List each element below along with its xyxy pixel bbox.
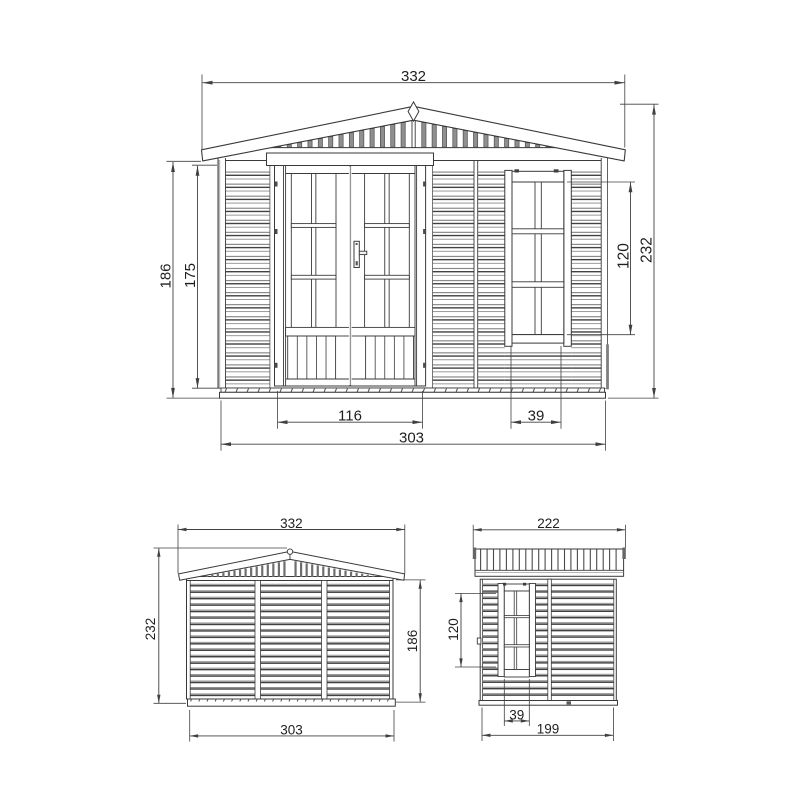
svg-text:303: 303 xyxy=(399,430,424,447)
svg-text:232: 232 xyxy=(143,618,158,641)
svg-text:332: 332 xyxy=(280,516,303,531)
svg-text:175: 175 xyxy=(182,263,199,288)
svg-text:120: 120 xyxy=(615,243,632,269)
svg-text:116: 116 xyxy=(338,408,362,425)
svg-text:199: 199 xyxy=(537,722,560,737)
svg-text:232: 232 xyxy=(639,237,656,263)
svg-text:186: 186 xyxy=(405,630,420,653)
svg-text:186: 186 xyxy=(157,263,174,288)
svg-text:39: 39 xyxy=(509,707,524,722)
svg-text:120: 120 xyxy=(446,618,461,641)
svg-text:39: 39 xyxy=(528,408,545,425)
svg-text:222: 222 xyxy=(537,516,560,531)
svg-text:303: 303 xyxy=(280,722,303,737)
svg-text:332: 332 xyxy=(401,68,426,85)
